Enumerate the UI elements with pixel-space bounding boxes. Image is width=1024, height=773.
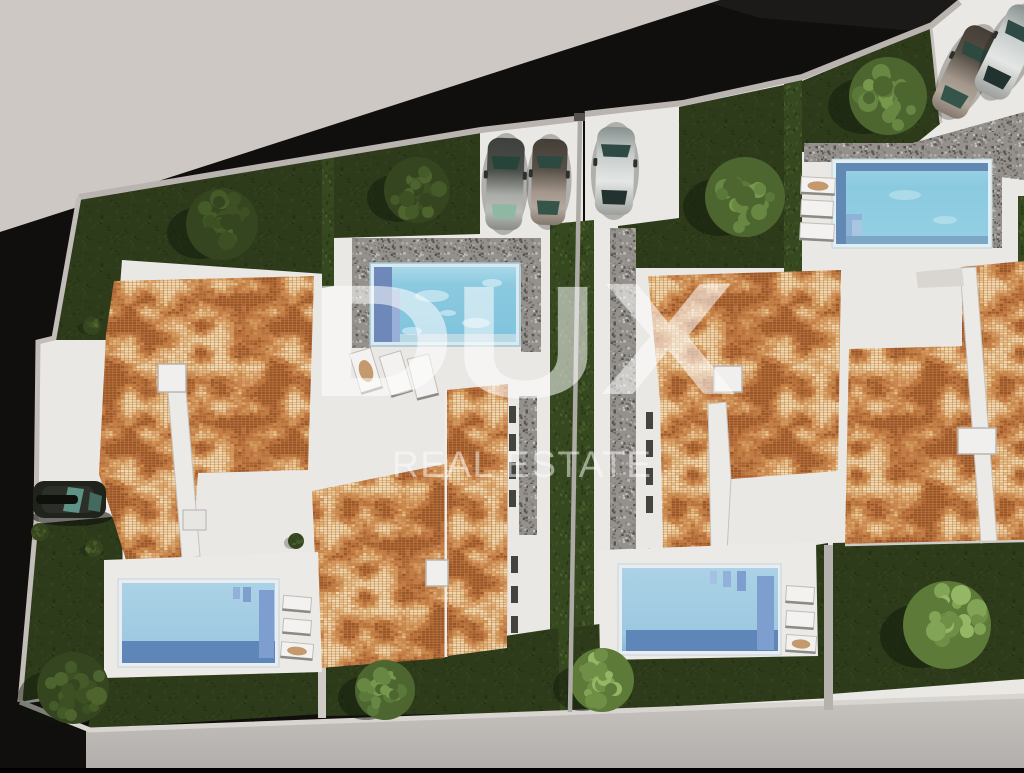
svg-text:REAL ESTATE: REAL ESTATE — [392, 444, 653, 485]
svg-text:D: D — [308, 251, 456, 429]
svg-text:U: U — [452, 252, 600, 430]
svg-text:X: X — [600, 249, 737, 427]
